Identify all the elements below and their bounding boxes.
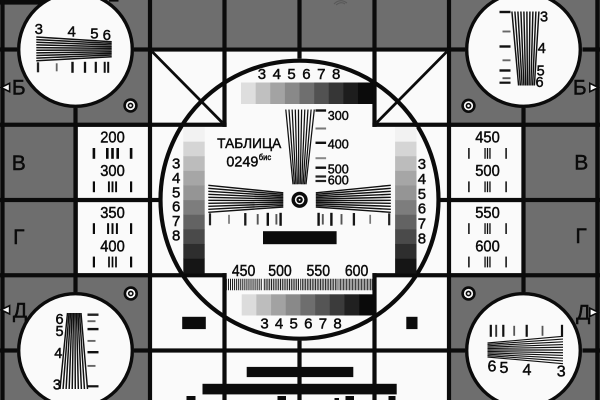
- svg-text:3: 3: [258, 66, 266, 83]
- svg-text:4: 4: [523, 362, 532, 379]
- svg-text:600: 600: [345, 263, 369, 280]
- svg-text:500: 500: [268, 263, 292, 280]
- svg-text:Д: Д: [576, 302, 590, 325]
- svg-text:3: 3: [540, 10, 548, 26]
- svg-text:6: 6: [536, 75, 544, 91]
- svg-text:Б: Б: [573, 77, 587, 100]
- svg-text:В: В: [574, 151, 588, 174]
- svg-text:400: 400: [328, 137, 349, 152]
- svg-text:500: 500: [475, 163, 500, 180]
- svg-text:8: 8: [172, 228, 180, 245]
- svg-text:5: 5: [290, 316, 298, 333]
- svg-text:6: 6: [302, 66, 310, 83]
- svg-text:бис: бис: [259, 153, 271, 162]
- svg-text:3: 3: [35, 21, 43, 38]
- svg-text:8: 8: [418, 231, 426, 248]
- svg-text:4: 4: [538, 41, 546, 57]
- svg-text:550: 550: [475, 205, 500, 222]
- svg-text:5: 5: [500, 360, 509, 377]
- svg-text:600: 600: [475, 238, 500, 255]
- svg-text:450: 450: [475, 130, 500, 147]
- svg-text:600: 600: [328, 173, 349, 188]
- svg-text:450: 450: [232, 263, 256, 280]
- svg-text:4: 4: [275, 316, 283, 333]
- svg-text:8: 8: [332, 66, 340, 83]
- svg-text:6: 6: [488, 359, 497, 376]
- svg-text:6: 6: [103, 27, 111, 44]
- svg-text:Г: Г: [575, 225, 586, 248]
- svg-text:300: 300: [328, 108, 349, 123]
- svg-text:350: 350: [100, 205, 125, 222]
- svg-text:3: 3: [260, 316, 268, 333]
- svg-text:5: 5: [90, 25, 98, 42]
- svg-text:0249: 0249: [226, 154, 258, 171]
- svg-text:Г: Г: [13, 226, 24, 249]
- svg-text:300: 300: [100, 163, 125, 180]
- svg-text:5: 5: [287, 66, 295, 83]
- svg-text:400: 400: [100, 238, 125, 255]
- svg-text:ТАБЛИЦА: ТАБЛИЦА: [217, 136, 281, 151]
- svg-text:Б: Б: [12, 77, 26, 100]
- svg-text:5: 5: [56, 324, 64, 340]
- svg-text:4: 4: [68, 23, 76, 40]
- svg-text:7: 7: [317, 66, 325, 83]
- svg-text:550: 550: [307, 263, 331, 280]
- svg-text:8: 8: [333, 316, 341, 333]
- svg-text:3: 3: [557, 364, 566, 381]
- svg-text:6: 6: [304, 316, 312, 333]
- svg-text:Д: Д: [13, 299, 27, 322]
- svg-text:200: 200: [100, 130, 125, 147]
- svg-text:4: 4: [273, 66, 281, 83]
- svg-text:3: 3: [53, 378, 61, 394]
- svg-text:4: 4: [54, 346, 62, 362]
- svg-text:В: В: [12, 152, 26, 175]
- svg-text:7: 7: [319, 316, 327, 333]
